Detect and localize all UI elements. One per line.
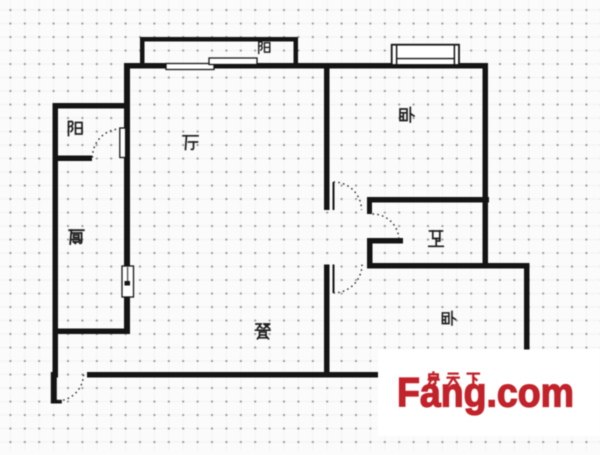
svg-text:Fang.com: Fang.com: [397, 370, 574, 416]
